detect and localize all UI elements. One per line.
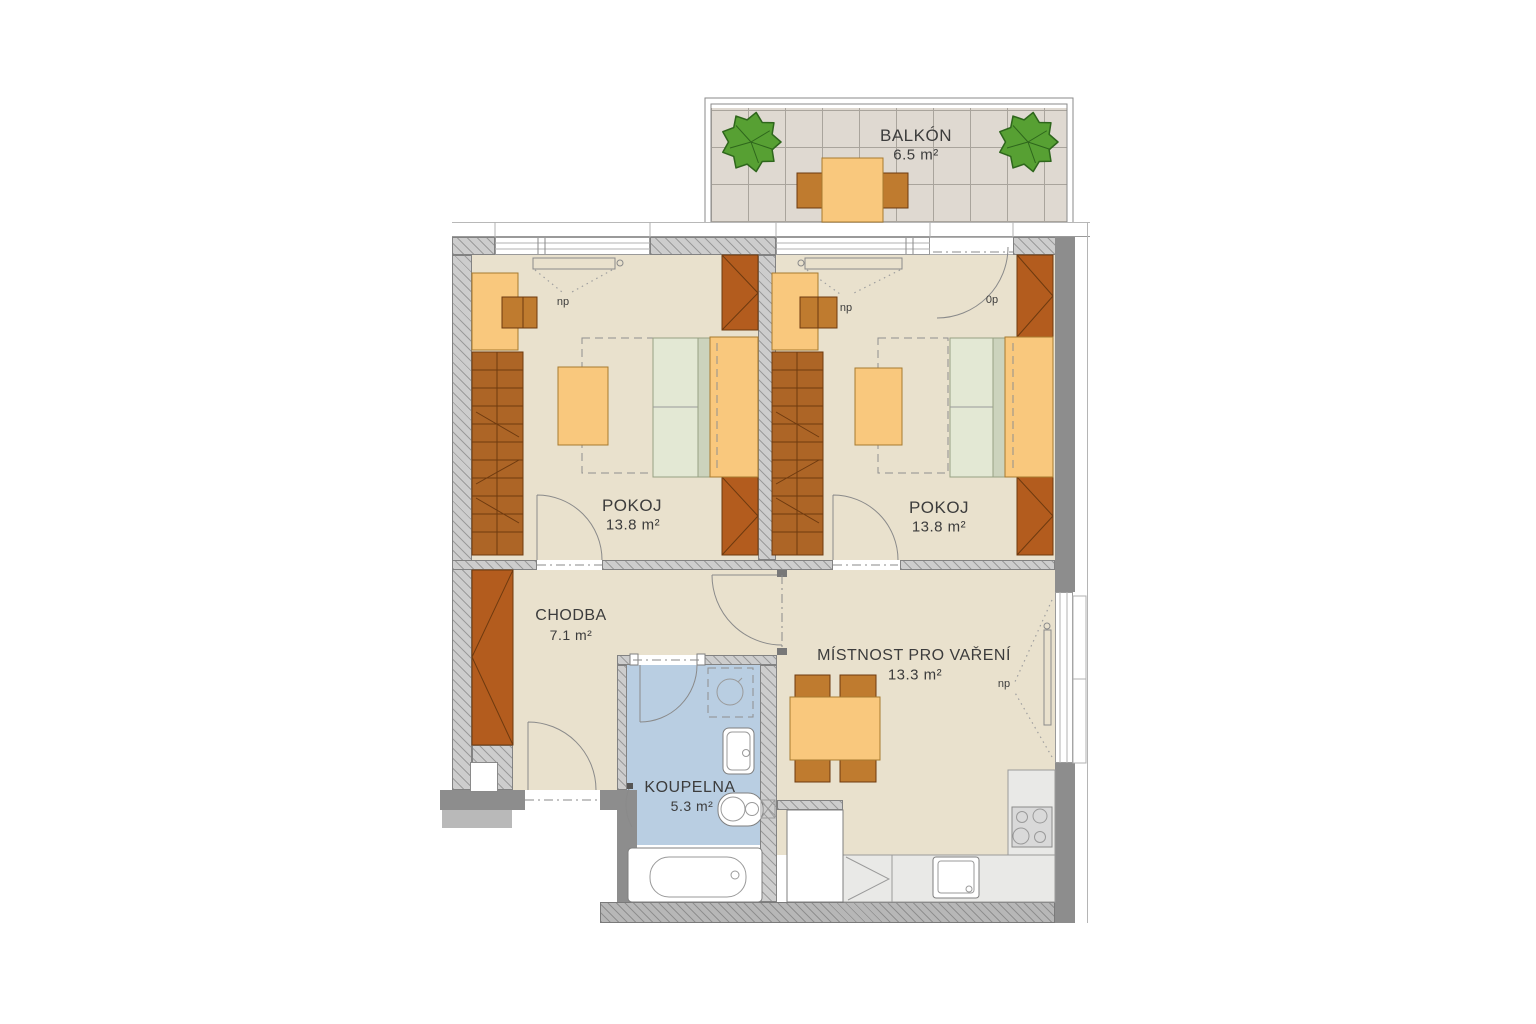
- kitchen-radiator: [1044, 623, 1051, 725]
- bathroom-area: 5.3 m²: [671, 798, 714, 814]
- room2-bed: [950, 337, 1053, 477]
- balcony-door: [937, 247, 1008, 318]
- room2-radiator: [798, 258, 902, 269]
- room1-label: POKOJ: [602, 496, 662, 516]
- room1-bed: [653, 337, 758, 477]
- room1-table: [558, 367, 608, 445]
- room2-wardrobe-bottom: [1017, 477, 1053, 555]
- room1-wardrobe-top: [722, 255, 758, 330]
- kitchen-label: MÍSTNOST PRO VAŘENÍ: [817, 647, 1011, 665]
- room2-label: POKOJ: [909, 498, 969, 518]
- balcony-door-annotation: 0p: [986, 294, 998, 306]
- room2-wardrobe-lined: [772, 352, 823, 555]
- passage-door: [712, 575, 782, 645]
- bathtub: [628, 848, 762, 902]
- balcony-table: [822, 158, 883, 222]
- room2-area: 13.8 m²: [912, 519, 966, 536]
- entrance-door: [528, 722, 596, 790]
- room2-window-annotation: np: [840, 302, 852, 314]
- room1-area: 13.8 m²: [606, 517, 660, 534]
- toilet: [718, 793, 763, 826]
- towel-radiator: [626, 783, 633, 827]
- kitchen-window-annotation: np: [998, 678, 1010, 690]
- room2-wardrobe-top: [1017, 255, 1053, 337]
- floor-plan: BALKÓN 6.5 m² POKOJ 13.8 m² POKOJ 13.8 m…: [0, 0, 1536, 1024]
- dining-table: [790, 697, 880, 760]
- stove: [1012, 807, 1052, 847]
- bathroom-door: [630, 654, 705, 722]
- room1-window-annotation: np: [557, 296, 569, 308]
- bathroom-label: KOUPELNA: [644, 779, 735, 797]
- room1-door: [537, 495, 602, 560]
- room1-wardrobe-bottom: [722, 477, 758, 555]
- kitchen-sink: [933, 857, 979, 898]
- balcony-label: BALKÓN: [880, 126, 952, 146]
- balcony-chair-left: [797, 173, 822, 208]
- balcony-plant-right: [1000, 112, 1058, 171]
- room1-chair: [502, 297, 537, 328]
- hallway-area: 7.1 m²: [550, 627, 593, 643]
- tall-unit: [787, 810, 843, 902]
- room1-wardrobe-lined: [472, 352, 523, 555]
- balcony-plant-left: [723, 112, 781, 171]
- hallway-wardrobe: [472, 570, 513, 745]
- bathroom-sink: [723, 728, 754, 774]
- room2-chair: [800, 297, 837, 328]
- balcony-chair-right: [883, 173, 908, 208]
- kitchen-area: 13.3 m²: [888, 667, 942, 684]
- room2-door: [833, 495, 898, 560]
- plan-symbols: [0, 0, 1536, 1024]
- balcony-area: 6.5 m²: [893, 147, 939, 164]
- hallway-label: CHODBA: [535, 607, 606, 625]
- washing-machine: [708, 668, 753, 717]
- room2-table: [855, 368, 902, 445]
- room1-radiator: [533, 258, 623, 269]
